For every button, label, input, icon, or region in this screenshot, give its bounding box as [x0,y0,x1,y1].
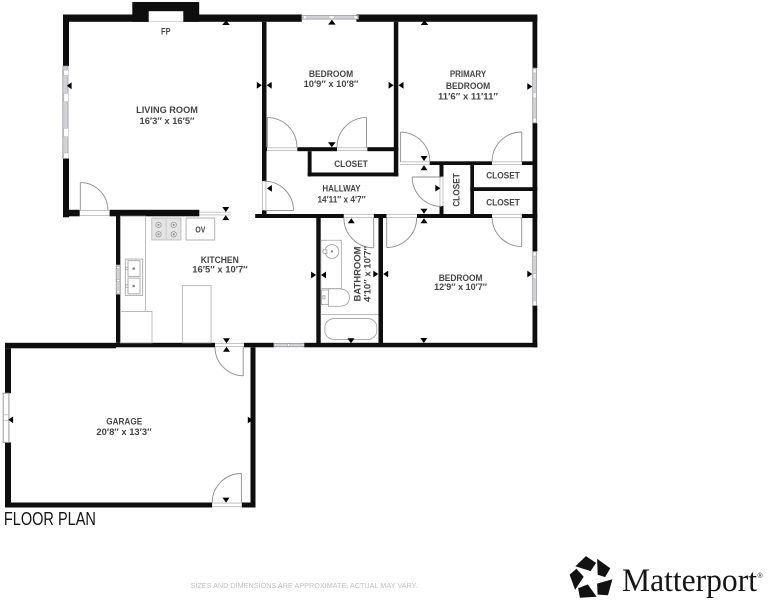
svg-text:20′8″ x 13′3″: 20′8″ x 13′3″ [96,427,152,438]
svg-text:16′5″ x 10′7″: 16′5″ x 10′7″ [192,265,248,276]
svg-text:HALLWAY: HALLWAY [322,183,361,194]
svg-text:10′9″ x 10′8″: 10′9″ x 10′8″ [304,79,359,90]
svg-text:CLOSET: CLOSET [486,198,520,208]
svg-text:4′10″ x 10′7″: 4′10″ x 10′7″ [363,246,374,302]
svg-text:FP: FP [161,26,171,36]
svg-text:CLOSET: CLOSET [452,173,462,207]
svg-text:16′3″ x 16′5″: 16′3″ x 16′5″ [140,116,195,127]
svg-text:FLOOR PLAN: FLOOR PLAN [4,508,96,529]
svg-text:12′9″ x 10′7″: 12′9″ x 10′7″ [434,282,487,293]
svg-text:SIZES AND DIMENSIONS ARE APPRO: SIZES AND DIMENSIONS ARE APPROXIMATE, AC… [191,581,418,590]
svg-text:11′6″ x 11′11″: 11′6″ x 11′11″ [438,91,498,102]
svg-text:OV: OV [195,225,206,234]
svg-text:LIVING ROOM: LIVING ROOM [136,105,198,116]
svg-text:Matterport: Matterport [622,563,757,599]
svg-text:CLOSET: CLOSET [486,171,520,181]
svg-text:PRIMARY: PRIMARY [450,69,487,80]
svg-text:BEDROOM: BEDROOM [446,81,490,92]
svg-text:14′11″ x 4′7″: 14′11″ x 4′7″ [317,195,365,206]
svg-text:®: ® [758,572,764,580]
svg-text:CLOSET: CLOSET [334,159,368,169]
